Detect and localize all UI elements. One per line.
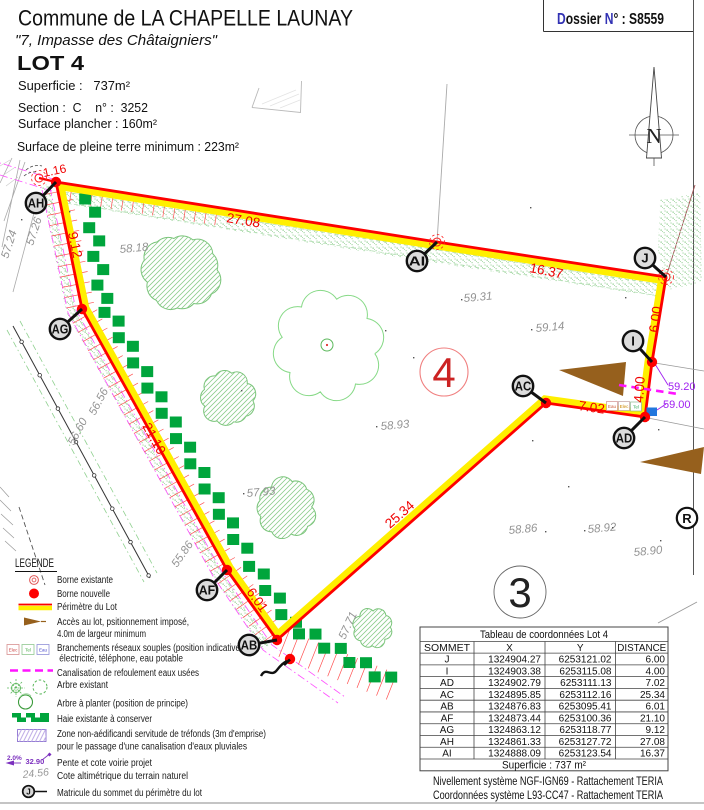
svg-text:AF: AF — [441, 713, 454, 724]
svg-text:LOT 4: LOT 4 — [17, 53, 85, 75]
svg-text:J: J — [445, 655, 450, 666]
svg-text:6253127.72: 6253127.72 — [559, 737, 612, 748]
svg-text:Matricule du sommet du périmèt: Matricule du sommet du périmètre du lot — [57, 788, 202, 799]
svg-text:"7, Impasse des Châtaigniers": "7, Impasse des Châtaigniers" — [15, 33, 218, 49]
svg-text:59.14: 59.14 — [535, 321, 565, 335]
svg-text:6253095.41: 6253095.41 — [559, 702, 612, 713]
svg-text:4.00: 4.00 — [646, 666, 666, 677]
svg-text:DISTANCE: DISTANCE — [617, 643, 666, 654]
svg-text:Surface plancher : 160m²: Surface plancher : 160m² — [18, 116, 158, 131]
svg-text:Arbre à planter (position de p: Arbre à planter (position de principe) — [57, 699, 188, 710]
svg-text:Eau: Eau — [608, 404, 617, 409]
svg-text:AG: AG — [440, 725, 455, 736]
svg-text:4.0m de largeur minimum: 4.0m de largeur minimum — [57, 629, 146, 640]
svg-text:1324904.27: 1324904.27 — [488, 655, 541, 666]
svg-text:58.90: 58.90 — [633, 544, 663, 559]
svg-text:Surface de pleine terre minimu: Surface de pleine terre minimum : 223m² — [17, 139, 240, 154]
svg-text:AD: AD — [616, 432, 633, 446]
svg-text:32.90: 32.90 — [26, 757, 45, 766]
svg-text:Elec: Elec — [620, 404, 630, 409]
svg-text:1324863.12: 1324863.12 — [488, 725, 541, 736]
svg-text:4.00: 4.00 — [631, 376, 648, 403]
svg-text:Tel: Tel — [25, 648, 31, 653]
svg-text:SOMMET: SOMMET — [424, 643, 470, 654]
svg-text:AB: AB — [440, 702, 454, 713]
svg-text:Coordonnées système L93-CC47: Coordonnées système L93-CC47 - Rattachem… — [433, 788, 663, 802]
svg-text:6253115.08: 6253115.08 — [559, 666, 612, 677]
svg-text:AG: AG — [52, 323, 69, 337]
svg-text:6253111.13: 6253111.13 — [560, 678, 612, 689]
svg-text:6.00: 6.00 — [646, 655, 666, 666]
svg-text:AC: AC — [515, 380, 532, 394]
svg-text:AD: AD — [440, 678, 454, 689]
svg-text:Cote altimétrique du terrain n: Cote altimétrique du terrain naturel — [57, 771, 188, 782]
svg-text:AF: AF — [199, 584, 216, 598]
svg-text:X: X — [506, 643, 513, 654]
svg-text:Périmètre du Lot: Périmètre du Lot — [57, 602, 117, 613]
svg-text:1324903.38: 1324903.38 — [488, 666, 541, 677]
svg-text:58.92: 58.92 — [587, 521, 617, 536]
svg-text:1324895.85: 1324895.85 — [488, 690, 541, 701]
svg-text:58.18: 58.18 — [119, 241, 149, 256]
svg-text:6253123.54: 6253123.54 — [559, 749, 612, 760]
svg-text:I: I — [446, 666, 449, 677]
svg-text:6253121.02: 6253121.02 — [559, 655, 612, 666]
svg-text:59.00: 59.00 — [663, 399, 691, 411]
svg-text:3: 3 — [508, 569, 531, 616]
svg-text:4: 4 — [432, 349, 455, 396]
svg-text:Eau: Eau — [39, 648, 48, 653]
svg-text:Borne nouvelle: Borne nouvelle — [57, 589, 110, 600]
svg-text:58.93: 58.93 — [380, 418, 410, 433]
svg-text:Haie existante à conserver: Haie existante à conserver — [57, 714, 153, 725]
svg-text:LEGENDE: LEGENDE — [15, 558, 54, 570]
svg-text:1324861.33: 1324861.33 — [488, 737, 541, 748]
svg-text:Superficie : 737 m²: Superficie : 737 m² — [502, 760, 586, 772]
svg-text:AI: AI — [442, 749, 451, 760]
svg-text:25.34: 25.34 — [640, 690, 665, 701]
svg-text:I: I — [631, 334, 635, 349]
svg-text:58.86: 58.86 — [508, 522, 538, 537]
svg-text:AB: AB — [241, 639, 258, 653]
svg-text:1324888.09: 1324888.09 — [488, 749, 541, 760]
svg-text:6.01: 6.01 — [646, 702, 666, 713]
svg-text:1324873.44: 1324873.44 — [488, 713, 541, 724]
svg-text:R: R — [682, 511, 692, 526]
svg-text:1324876.83: 1324876.83 — [488, 702, 541, 713]
svg-text:6253118.77: 6253118.77 — [559, 725, 612, 736]
svg-text:Commune de LA CHAPELLE LAUNAY: Commune de LA CHAPELLE LAUNAY — [18, 6, 353, 31]
svg-text:Accès au lot, psitionnement im: Accès au lot, psitionnement imposé, — [57, 617, 189, 628]
svg-text:1324902.79: 1324902.79 — [488, 678, 541, 689]
svg-text:Branchements réseaux souples (: Branchements réseaux souples (position i… — [57, 643, 240, 654]
svg-text:Arbre existant: Arbre existant — [57, 680, 108, 691]
svg-text:Elec: Elec — [9, 648, 19, 653]
svg-text:J: J — [641, 251, 648, 266]
svg-text:Section : C n° : 3252: Section : C n° : 3252 — [18, 100, 148, 115]
svg-text:21.10: 21.10 — [640, 713, 665, 724]
svg-text:Superficie : 737m²: Superficie : 737m² — [18, 78, 131, 93]
svg-text:Pente et cote voirie projet: Pente et cote voirie projet — [57, 758, 152, 769]
svg-text:Y: Y — [577, 643, 584, 654]
svg-text:pour le passage d'une canalisa: pour le passage d'une canalisation d'eau… — [57, 742, 247, 753]
svg-text:Tableau de coordonnées Lot 4: Tableau de coordonnées Lot 4 — [480, 629, 608, 641]
svg-text:Canalisation de refoulement ea: Canalisation de refoulement eaux usées — [57, 668, 199, 679]
svg-text:Dossier N° : S8559: Dossier N° : S8559 — [557, 11, 664, 28]
svg-text:6253112.16: 6253112.16 — [559, 690, 612, 701]
svg-text:AC: AC — [440, 690, 454, 701]
svg-text:57.93: 57.93 — [246, 485, 276, 500]
svg-text:AI: AI — [409, 255, 426, 269]
svg-text:AH: AH — [440, 737, 454, 748]
svg-text:J: J — [26, 788, 30, 797]
svg-text:Borne existante: Borne existante — [57, 575, 113, 586]
svg-text:16.37: 16.37 — [640, 749, 665, 760]
svg-text:59.31: 59.31 — [463, 291, 493, 305]
svg-text:N: N — [646, 124, 661, 148]
svg-text:Nivellement système NGF-IGN69: Nivellement système NGF-IGN69 - Rattache… — [433, 774, 663, 788]
svg-text:9.12: 9.12 — [646, 725, 666, 736]
svg-text:59.20: 59.20 — [668, 381, 696, 393]
svg-text:AH: AH — [28, 197, 45, 211]
svg-text:6253100.36: 6253100.36 — [559, 713, 612, 724]
svg-text:7.02: 7.02 — [646, 678, 666, 689]
svg-text:2.0%: 2.0% — [7, 755, 22, 762]
svg-text:électricité, téléphone, eau po: électricité, téléphone, eau potable — [57, 654, 183, 665]
svg-text:Tel: Tel — [633, 405, 639, 410]
svg-text:27.08: 27.08 — [640, 737, 665, 748]
svg-text:Zone non-aédificandi servitude: Zone non-aédificandi servitude de tréfon… — [57, 729, 266, 740]
